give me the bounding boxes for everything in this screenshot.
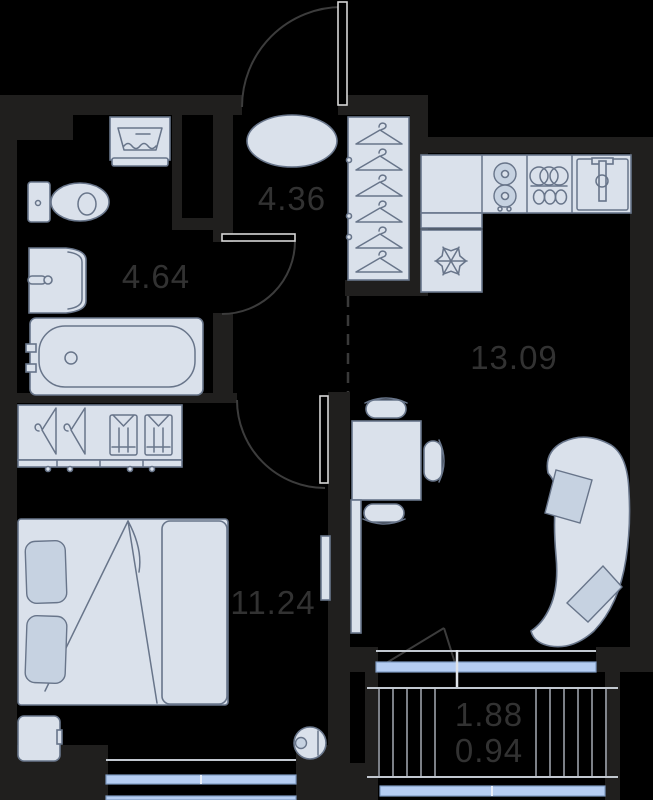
bedroom-area-label: 11.24 bbox=[230, 584, 315, 621]
toilet bbox=[28, 182, 109, 222]
balcony-reduced-area-label: 0.94 bbox=[455, 732, 523, 769]
balcony-glazing bbox=[380, 786, 605, 796]
sofa bbox=[531, 437, 630, 647]
dining-table bbox=[352, 421, 421, 500]
floor-plan: 4.64 4.36 13.09 11.24 1.88 0.94 bbox=[0, 0, 653, 800]
bathroom-door bbox=[222, 234, 295, 314]
pouf bbox=[247, 115, 337, 167]
bathtub bbox=[26, 318, 203, 395]
pillow-icon bbox=[25, 615, 67, 683]
dining-chair bbox=[365, 398, 407, 418]
entrance-door bbox=[242, 2, 347, 107]
robot-vacuum bbox=[294, 727, 326, 759]
hallway-wardrobe bbox=[347, 117, 410, 280]
hallway-area-label: 4.36 bbox=[258, 180, 326, 217]
kitchen-living-area-label: 13.09 bbox=[470, 339, 558, 376]
bedroom-window bbox=[106, 760, 296, 800]
bedroom-tv bbox=[321, 536, 330, 600]
balcony-area-label: 1.88 bbox=[455, 696, 523, 733]
tv-console bbox=[351, 500, 361, 633]
pillow-icon bbox=[25, 540, 67, 603]
fridge bbox=[421, 230, 482, 292]
dining-table-set bbox=[352, 398, 444, 524]
dining-chair bbox=[424, 440, 444, 482]
double-bed bbox=[18, 519, 228, 705]
bathroom-sink bbox=[28, 248, 86, 313]
washing-machine bbox=[110, 117, 170, 166]
bathroom-area-label: 4.64 bbox=[122, 258, 190, 295]
bedroom-door bbox=[237, 396, 328, 488]
balcony-door-swing bbox=[383, 628, 455, 665]
dining-chair bbox=[363, 504, 405, 524]
bedroom-wardrobe bbox=[18, 405, 182, 472]
nightstand bbox=[18, 716, 62, 761]
living-room-window bbox=[376, 650, 596, 688]
